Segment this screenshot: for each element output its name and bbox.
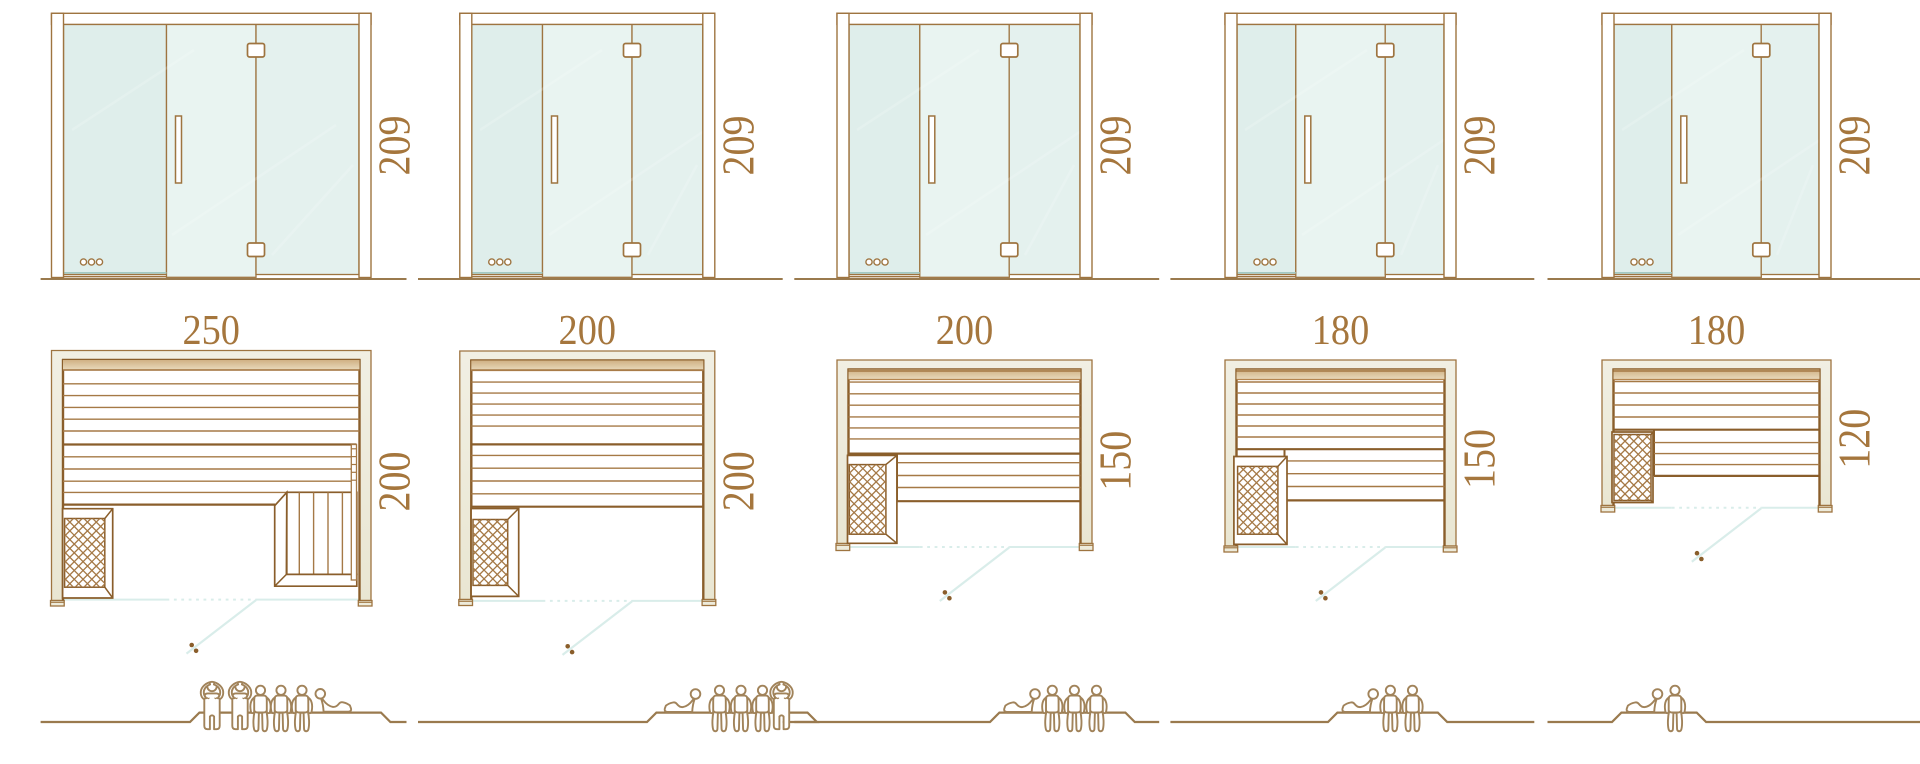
svg-text:180: 180 (1312, 308, 1370, 354)
svg-text:120: 120 (1830, 409, 1880, 469)
svg-text:180: 180 (1688, 308, 1746, 354)
svg-text:209: 209 (370, 116, 420, 176)
svg-text:200: 200 (713, 451, 763, 511)
svg-text:200: 200 (559, 308, 617, 354)
svg-text:150: 150 (1091, 431, 1141, 491)
svg-text:209: 209 (1830, 116, 1880, 176)
svg-text:209: 209 (713, 116, 763, 176)
svg-text:209: 209 (1091, 116, 1141, 176)
svg-text:250: 250 (182, 308, 240, 354)
svg-text:200: 200 (370, 452, 420, 512)
svg-text:209: 209 (1455, 116, 1505, 176)
svg-text:200: 200 (936, 308, 994, 354)
svg-text:150: 150 (1455, 429, 1505, 489)
